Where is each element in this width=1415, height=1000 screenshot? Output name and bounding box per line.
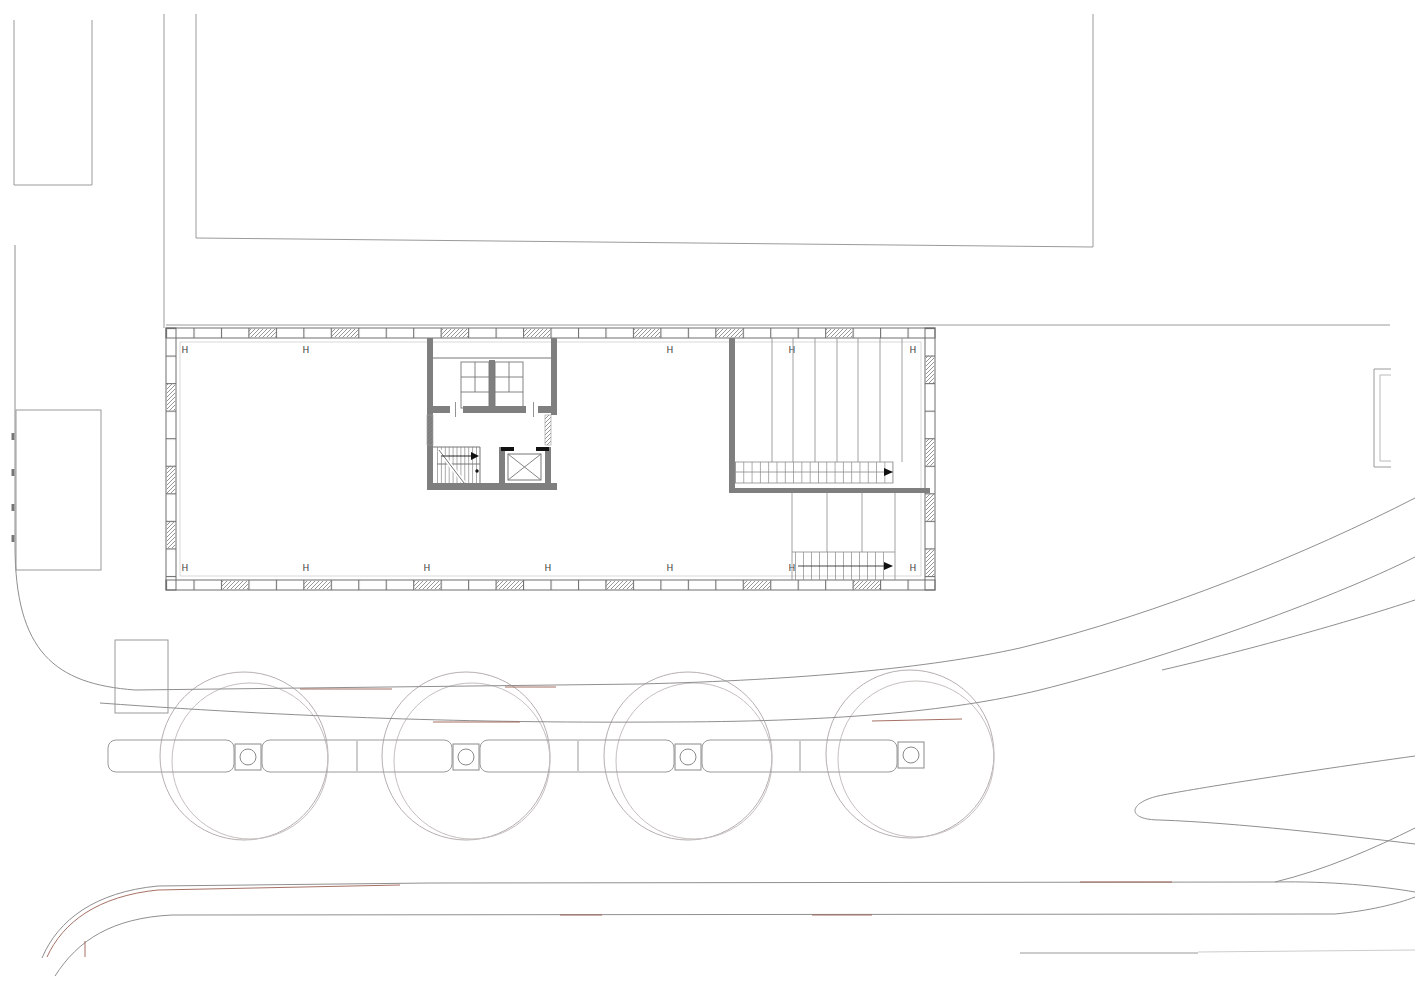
core-wall-right xyxy=(551,338,557,415)
road-edge-d xyxy=(55,897,1415,976)
elevator-door-bar-left xyxy=(501,447,514,451)
grid-marker: H xyxy=(910,345,917,355)
upper-left-annex-outline xyxy=(14,20,92,185)
tree xyxy=(826,670,994,838)
small-plot-rectangle xyxy=(115,640,168,713)
red-curb-curve xyxy=(47,885,400,957)
wc-fixtures-left xyxy=(461,362,489,408)
grid-marker: H xyxy=(545,563,552,573)
curb-line-right-faint xyxy=(1198,950,1415,952)
upper-building-outline xyxy=(14,14,1093,328)
wc-center-wall xyxy=(489,360,495,408)
grid-marker: H xyxy=(303,563,310,573)
ramp-wall-left xyxy=(729,338,735,490)
traffic-island xyxy=(1135,756,1415,844)
road-network xyxy=(15,245,1415,976)
boundary-tick-marks xyxy=(12,433,15,542)
corridor-opening-left xyxy=(427,415,433,445)
elevator-wall-left xyxy=(499,447,505,483)
ramp-dividing-wall xyxy=(729,488,930,493)
road-edge-c xyxy=(42,882,1275,958)
wc-fixtures-right xyxy=(495,362,523,408)
stair-start-dot xyxy=(475,469,478,472)
road-edge-c-branch-low xyxy=(1275,882,1415,892)
tree xyxy=(604,672,772,840)
facade-band-top xyxy=(166,328,935,338)
wc-bottom-wall xyxy=(427,406,557,413)
facade-band-bottom xyxy=(166,580,935,590)
elevator-wall-right xyxy=(545,447,551,483)
grid-marker: H xyxy=(303,345,310,355)
right-neighbour-wall xyxy=(1374,369,1391,467)
facade-band-left xyxy=(166,328,176,590)
corridor-opening-right xyxy=(545,415,551,445)
site-plan-drawing: H H H H H H H H H H H H xyxy=(0,0,1415,1000)
core-wall-left xyxy=(427,338,433,490)
tree-row xyxy=(108,670,994,840)
grid-marker: H xyxy=(789,345,796,355)
road-edge-a xyxy=(15,245,1415,690)
grid-marker: H xyxy=(667,563,674,573)
elevator-door-bar-right xyxy=(536,447,549,451)
left-plot-rectangle xyxy=(16,410,101,570)
ramp-lower xyxy=(792,493,895,580)
tree-grates xyxy=(235,742,924,770)
grid-marker: H xyxy=(182,345,189,355)
grid-marker: H xyxy=(910,563,917,573)
ramp-steps-strip xyxy=(735,462,893,483)
planter-strip xyxy=(108,740,897,772)
ramp-lower-arrow-icon xyxy=(884,562,893,570)
ramp-upper xyxy=(729,338,930,493)
stair xyxy=(433,447,480,483)
site-lines xyxy=(16,325,1391,713)
right-neighbour-wall-inner xyxy=(1380,375,1391,461)
grid-marker: H xyxy=(667,345,674,355)
grid-marker: H xyxy=(424,563,431,573)
drawing-canvas: H H H H H H H H H H H H xyxy=(0,0,1415,1000)
core-bottom-wall xyxy=(427,483,557,490)
grid-marker: H xyxy=(182,563,189,573)
tree xyxy=(160,672,328,840)
tree xyxy=(382,672,550,840)
ramp-lane-lines xyxy=(772,338,902,462)
upper-building-footprint xyxy=(196,14,1093,247)
